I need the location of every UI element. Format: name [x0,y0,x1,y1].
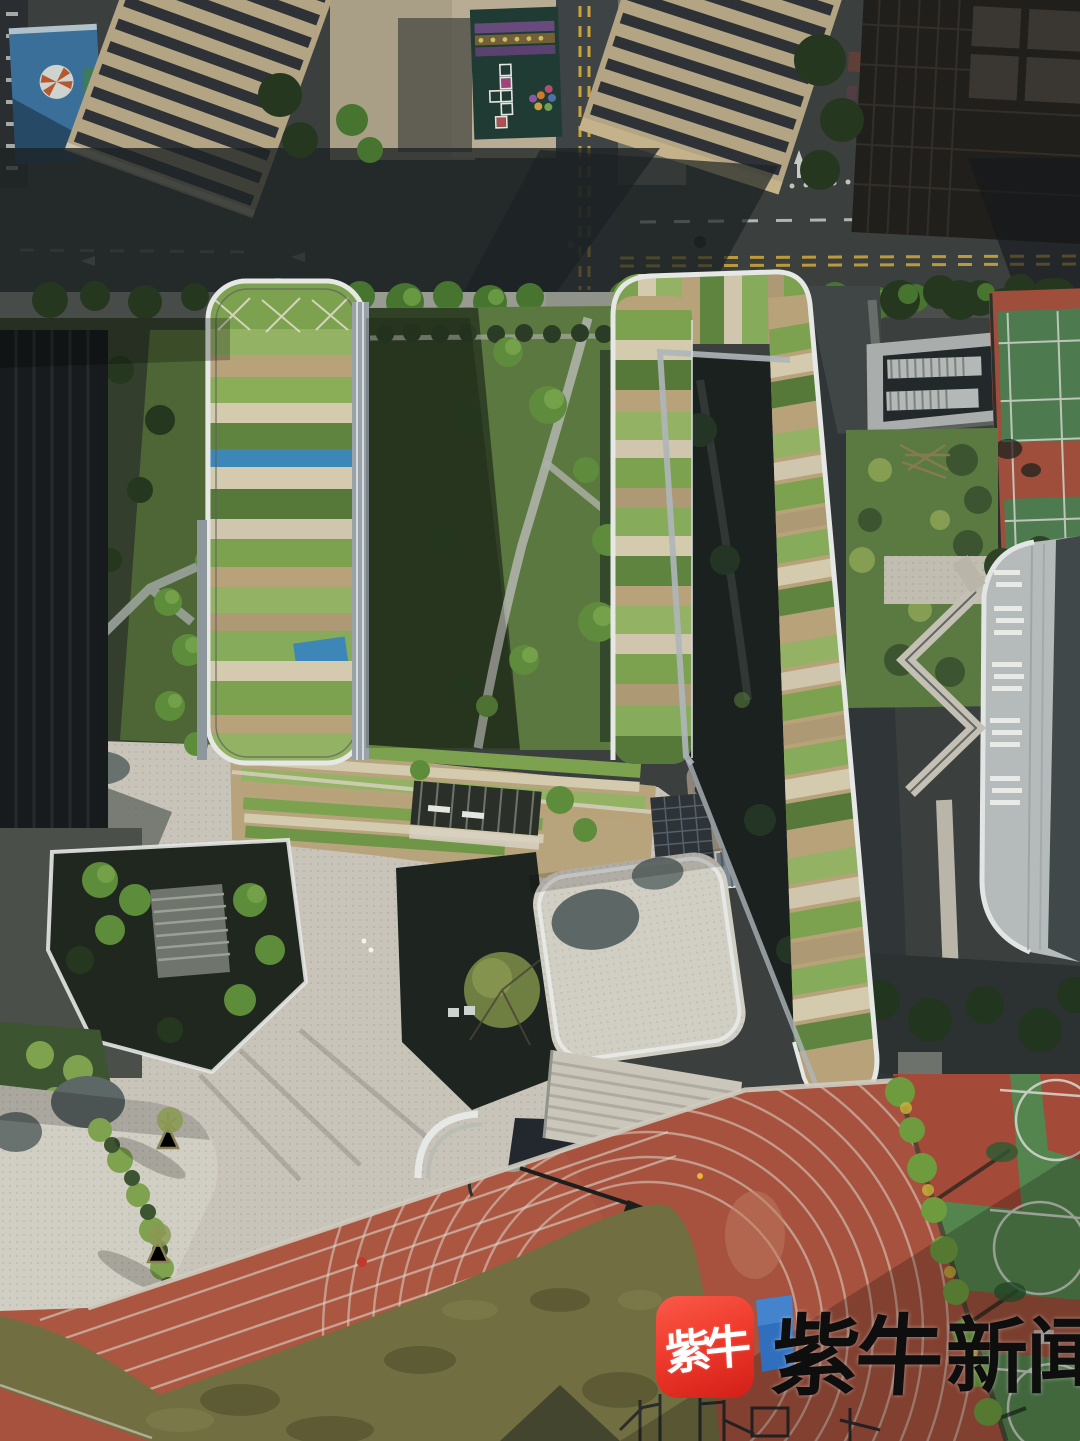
courtyard-steps [150,884,230,978]
ziniu-app-icon: 紫牛 [656,1296,754,1398]
ziniu-brand-text: 紫牛 新闻 [772,1297,1080,1401]
city-road-top [0,0,1080,332]
aerial-photo-stage: 紫牛 紫牛 新闻 [0,0,1080,1441]
ziniu-brand-text-light: 新闻 [946,1290,1080,1409]
aerial-photo [0,0,1080,1441]
hopscotch-playground-mat [470,7,562,140]
ziniu-app-icon-text: 紫牛 [663,1310,746,1384]
ziniu-brand-text-bold: 紫牛 [768,1286,945,1413]
